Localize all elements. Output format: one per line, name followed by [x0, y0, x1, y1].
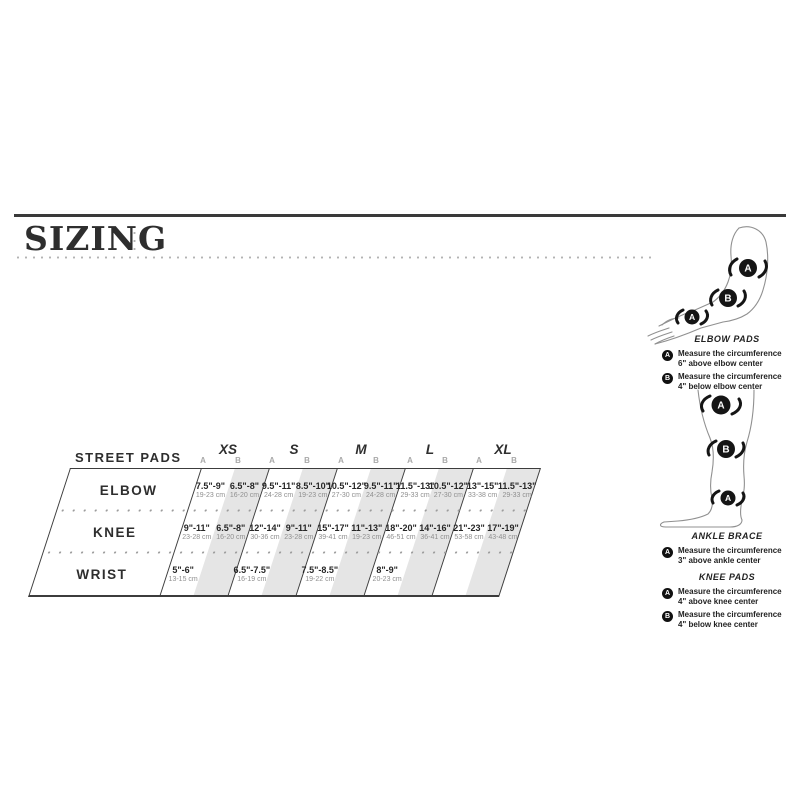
marker-a-icon: A: [662, 588, 673, 599]
size-header-l: L: [426, 442, 434, 457]
svg-text:B: B: [724, 294, 731, 305]
guide-item: A Measure the circumference3" above ankl…: [662, 546, 800, 566]
size-header-xs: XS: [219, 442, 237, 457]
svg-text:A: A: [689, 312, 695, 322]
elbow-marker-b-icon: B: [711, 289, 746, 307]
knee-pads-guide: KNEE PADS A Measure the circumference4" …: [652, 572, 800, 633]
ab-header: A: [407, 456, 413, 465]
marker-b-icon: B: [662, 611, 673, 622]
title-dotted-rule: [14, 256, 656, 259]
ab-header: A: [338, 456, 344, 465]
marker-b-icon: B: [662, 373, 673, 384]
table-body: ELBOW KNEE WRIST 7.5"-9"19-23 cm 6.5"-8"…: [28, 468, 541, 597]
wrist-marker-a-icon: A: [676, 310, 707, 325]
guide-item: B Measure the circumference4" below knee…: [662, 610, 800, 630]
ankle-marker-a-icon: A: [712, 491, 744, 506]
ab-header: B: [511, 456, 517, 465]
leg-outline: [664, 390, 713, 522]
elbow-pads-guide: ELBOW PADS A Measure the circumference6"…: [652, 334, 800, 395]
guide-item: A Measure the circumference6" above elbo…: [662, 349, 800, 369]
arm-outline: [659, 228, 739, 326]
arm-illustration: A B A: [635, 222, 790, 347]
knee-marker-a-icon: A: [701, 396, 740, 415]
guide-title: ELBOW PADS: [652, 334, 800, 344]
size-header-m: M: [355, 442, 366, 457]
row-label-elbow: ELBOW: [57, 469, 201, 511]
sizing-page: SIZING STREET PADS XS S M L XL A B A B A…: [0, 0, 800, 800]
row-label-wrist: WRIST: [30, 553, 174, 595]
svg-text:A: A: [725, 493, 731, 503]
arm-outline: [655, 227, 768, 344]
svg-text:A: A: [744, 264, 751, 275]
measurement-text: Measure the circumference4" above knee c…: [678, 587, 782, 607]
ab-header: A: [200, 456, 206, 465]
ab-header: B: [442, 456, 448, 465]
street-pads-label: STREET PADS: [75, 450, 182, 465]
guide-title: KNEE PADS: [652, 572, 800, 582]
guide-item: A Measure the circumference4" above knee…: [662, 587, 800, 607]
ankle-brace-guide: ANKLE BRACE A Measure the circumference3…: [652, 531, 800, 569]
measurement-text: Measure the circumference6" above elbow …: [678, 349, 782, 369]
elbow-marker-a-icon: A: [730, 259, 767, 277]
marker-a-icon: A: [662, 350, 673, 361]
leg-illustration: A B A: [650, 388, 790, 530]
row-label-knee: KNEE: [43, 511, 187, 553]
top-divider: [14, 214, 786, 217]
ab-header: B: [235, 456, 241, 465]
size-header-xl: XL: [494, 442, 511, 457]
ab-header: A: [476, 456, 482, 465]
size-header-s: S: [289, 442, 298, 457]
ab-header: B: [304, 456, 310, 465]
svg-text:A: A: [717, 401, 724, 412]
guide-title: ANKLE BRACE: [652, 531, 800, 541]
ab-header: A: [269, 456, 275, 465]
svg-text:B: B: [722, 445, 729, 456]
ab-header: B: [373, 456, 379, 465]
title-dot-separator: [133, 229, 136, 256]
marker-a-icon: A: [662, 547, 673, 558]
page-title: SIZING: [24, 221, 167, 257]
measurement-text: Measure the circumference3" above ankle …: [678, 546, 782, 566]
measurement-text: Measure the circumference4" below knee c…: [678, 610, 782, 630]
